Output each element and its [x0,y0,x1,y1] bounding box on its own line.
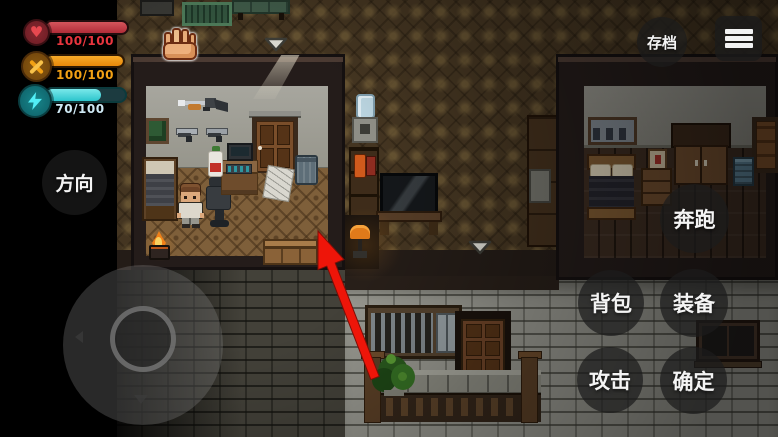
backpack-button[interactable]: 背包 [578,270,644,336]
hammer-wrench-icon [21,51,52,82]
health-value: 100/100 [50,34,120,48]
attack-button-label: 攻击 [589,365,631,395]
energy-value: 70/100 [45,102,115,116]
heart-glyph: ♥ [30,25,43,40]
tools-value: 100/100 [50,68,120,82]
save-button-label: 存档 [647,32,677,53]
confirm-button[interactable]: 确定 [660,347,727,414]
joystick-arrow-left-icon [75,331,83,343]
save-button[interactable]: 存档 [637,17,687,67]
equipment-button[interactable]: 装备 [660,269,728,337]
health-bar [44,20,129,35]
backpack-button-label: 背包 [590,288,632,318]
confirm-button-label: 确定 [673,366,715,396]
menu-button[interactable] [715,16,762,61]
lightning-glyph [28,92,42,110]
health-bar-fill [46,22,127,33]
direction-button-label: 方向 [55,169,93,196]
joystick-arrow-down-icon [134,395,148,404]
status-panel: ♥ 100/100 100/100 70/100 [0,0,140,125]
energy-bar [44,87,127,103]
hamburger-menu-icon [725,27,753,50]
joystick-knob[interactable] [110,306,176,372]
run-button-label: 奔跑 [674,204,716,234]
hamburger-bar [725,36,753,41]
heart-icon: ♥ [23,19,50,46]
tools-bar [44,54,125,68]
run-button[interactable]: 奔跑 [660,184,729,253]
energy-bar-fill [46,89,101,101]
hamburger-bar [725,43,753,48]
joystick[interactable] [63,265,223,425]
equipment-button-label: 装备 [673,288,715,318]
tools-bar-fill [46,56,123,66]
hamburger-bar [725,29,753,34]
attack-button[interactable]: 攻击 [577,347,643,413]
game-screen: ♥ 100/100 100/100 70/100 存档 方向 [0,0,778,437]
direction-button[interactable]: 方向 [42,150,107,215]
